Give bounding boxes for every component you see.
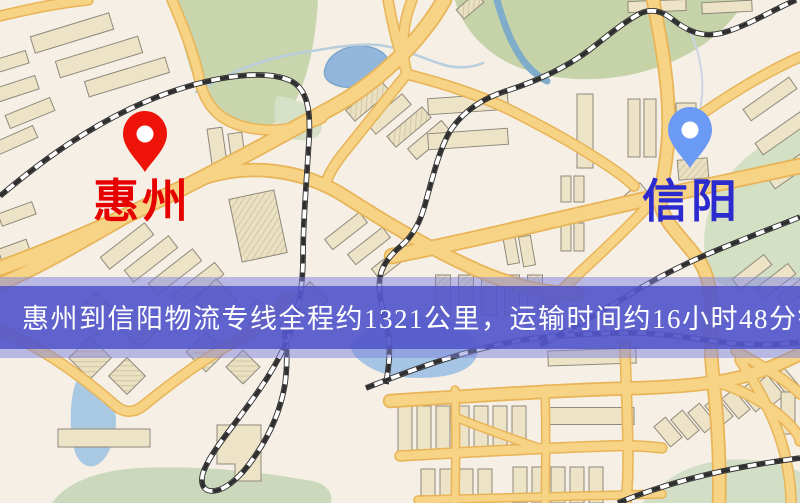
origin-pin-hole — [137, 126, 154, 143]
destination-label: 信阳 — [642, 176, 740, 227]
origin-label: 惠州 — [93, 176, 191, 227]
map: 惠州到信阳物流专线全程约1321公里，运输时间约16小时48分钟. 惠州 信阳 — [0, 0, 800, 503]
map-image: 惠州到信阳物流专线全程约1321公里，运输时间约16小时48分钟. 惠州 信阳 — [0, 0, 800, 503]
route-info-banner: 惠州到信阳物流专线全程约1321公里，运输时间约16小时48分钟. — [0, 277, 800, 358]
destination-pin-hole — [682, 122, 699, 139]
route-summary-text: 惠州到信阳物流专线全程约1321公里，运输时间约16小时48分钟. — [22, 304, 800, 334]
